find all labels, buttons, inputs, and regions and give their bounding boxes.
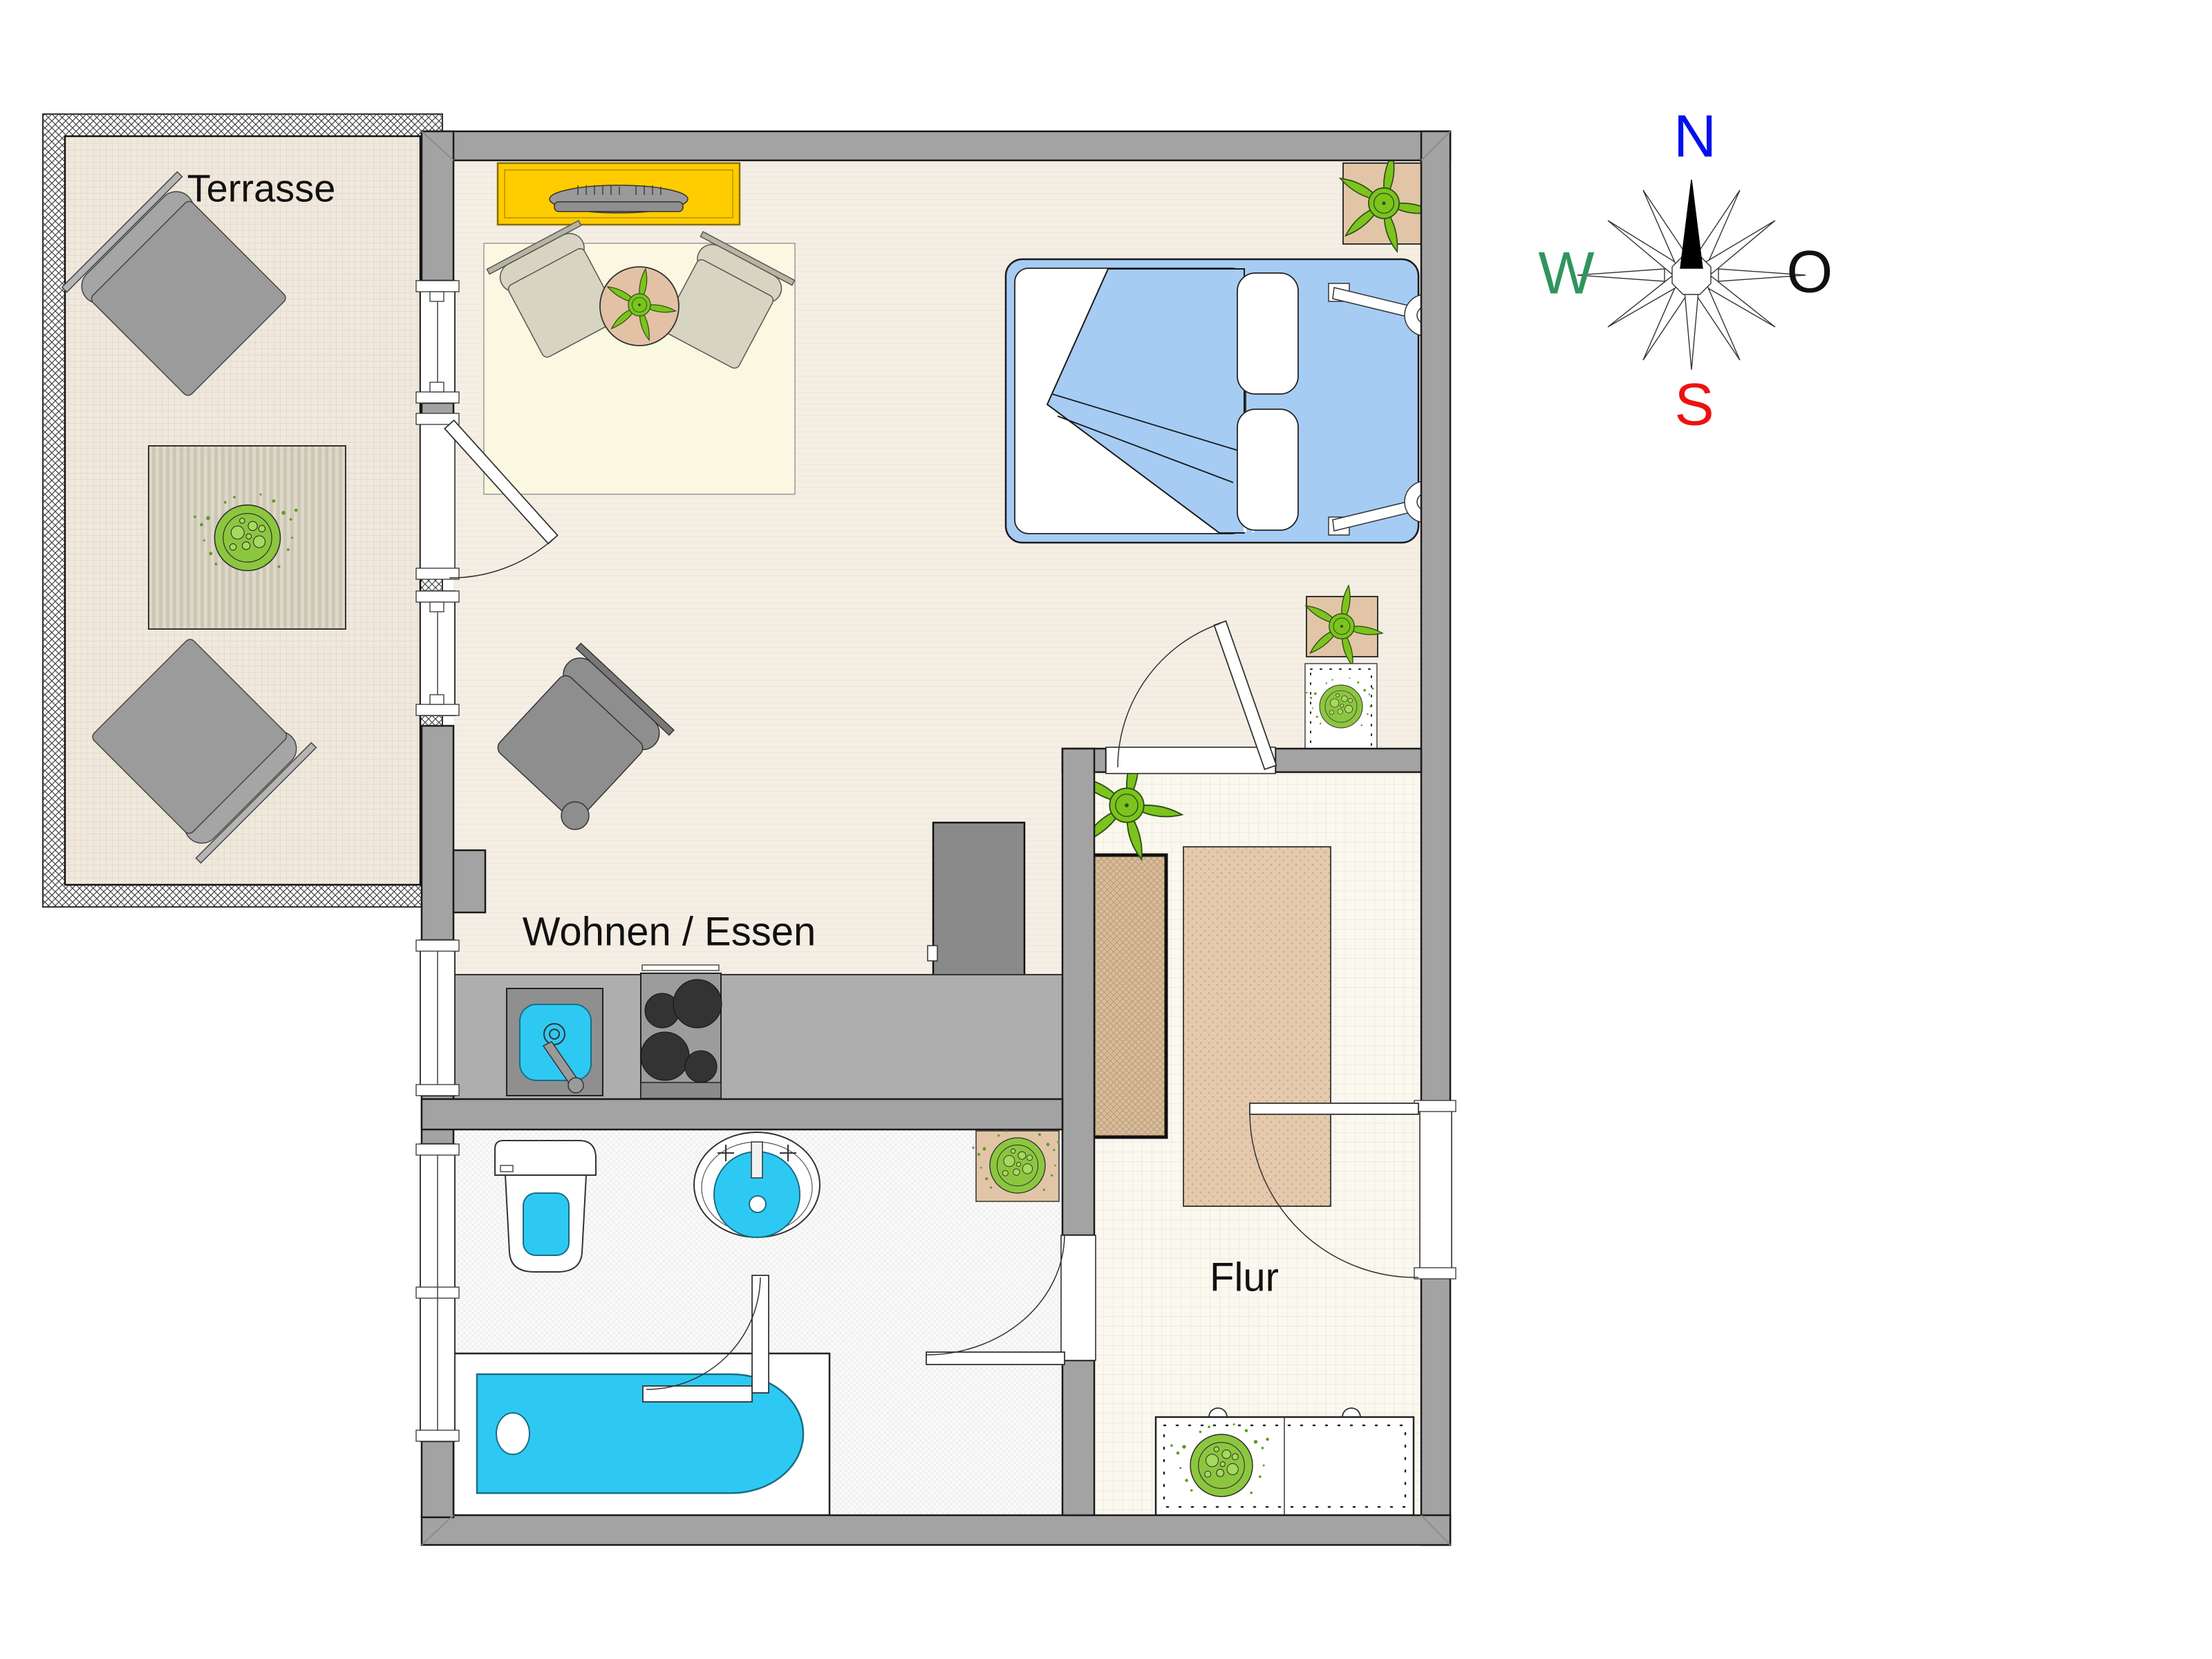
window-living-2 [416, 591, 459, 715]
floorplan-page: Terrasse Wohnen / Essen Flur N W O S [0, 0, 2212, 1659]
compass-rose [1577, 180, 1806, 370]
wall-left-3 [422, 726, 453, 940]
plant-corner-topright [1339, 153, 1434, 253]
compass-west-label: W [1538, 240, 1594, 308]
tall-cabinet [928, 823, 1024, 978]
wall-hall-bath-upper [1062, 749, 1094, 1235]
wall-bottom [422, 1515, 1450, 1545]
stove [641, 965, 722, 1098]
kitchen-sink [507, 988, 603, 1096]
wall-left-1 [422, 131, 453, 281]
plant-right-mid [1305, 585, 1383, 667]
hall-wardrobe [1183, 847, 1331, 1206]
compass-east-label: O [1787, 238, 1833, 307]
compass-south-label: S [1674, 371, 1714, 440]
wall-left-5 [422, 1441, 453, 1517]
window-living-1 [416, 281, 459, 403]
wall-right-upper [1421, 131, 1450, 1105]
bathroom-plant [972, 1128, 1060, 1201]
pillow-top [1237, 273, 1298, 394]
hall-label: Flur [1210, 1255, 1279, 1301]
compass-north-label: N [1674, 103, 1716, 171]
bathtub [453, 1353, 829, 1515]
hall-shoe-cabinet [1156, 1408, 1414, 1515]
bathroom-sink [694, 1132, 820, 1237]
hall-rug [1094, 855, 1166, 1137]
wall-kitchen-bath [422, 1099, 1062, 1130]
window-bath [416, 1144, 459, 1441]
wall-right-lower [1421, 1273, 1450, 1545]
terrace-label: Terrasse [187, 166, 336, 211]
wall-hall-living-right [1275, 749, 1421, 772]
compass-south-ray [1684, 283, 1699, 370]
terrace [43, 114, 442, 907]
toilet [495, 1141, 596, 1272]
living-label: Wohnen / Essen [523, 909, 816, 955]
dotted-rug-plant [1305, 664, 1377, 757]
wall-hall-bath-lower [1062, 1360, 1094, 1515]
sideboard [498, 163, 740, 225]
compass-north-needle [1680, 180, 1703, 268]
window-kitchen [416, 940, 459, 1096]
pillow-bottom [1237, 409, 1298, 530]
wall-top [422, 131, 1450, 160]
double-bed [1006, 259, 1446, 543]
floorplan-drawing [0, 0, 2212, 1659]
wall-pilaster [453, 850, 485, 912]
